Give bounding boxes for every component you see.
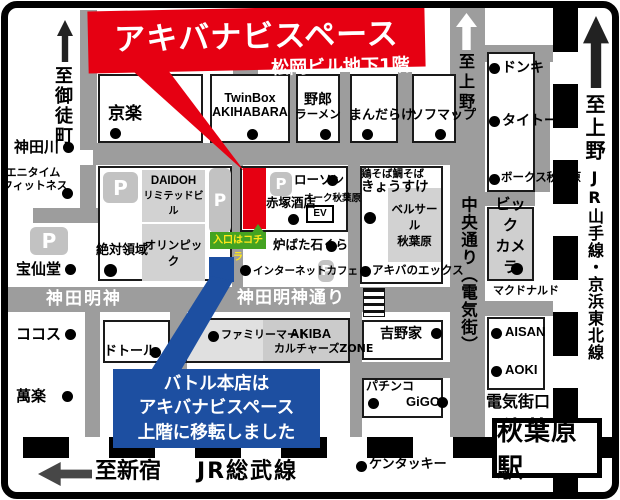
akihabara-access-map: P P P P P DAIDOH リミテッドビル オリンピック ベルサール 秋葉… xyxy=(0,0,620,500)
dot-lawson xyxy=(327,175,338,186)
dot-doutor xyxy=(150,347,161,358)
callout-line-3: 上階に移転しました xyxy=(113,421,320,446)
direction-okachimachi: 至御徒町 xyxy=(53,66,71,146)
dot-akatsuka xyxy=(288,214,299,225)
dot-akiba-no-x xyxy=(360,266,371,277)
place-donki: ドンキ xyxy=(502,60,544,76)
anytime-line-2: フィットネス xyxy=(2,180,64,193)
arrow-left-shinjuku-icon xyxy=(38,462,92,486)
direction-shinjuku-label: 至新宿 xyxy=(95,459,161,484)
dot-donki xyxy=(489,63,500,74)
building-bic-camera: ビック カメラ xyxy=(489,209,532,261)
dot-internet-cafe xyxy=(240,265,251,276)
rail-line-yamanote-label: JR山手線・京浜東北線 xyxy=(586,168,602,361)
title-banner: アキバナビスペース 松岡ビル地下1階 xyxy=(87,4,425,73)
road-upper-horizontal xyxy=(93,143,450,165)
place-aisan: AISAN xyxy=(505,325,545,340)
daidoh-label-1: DAIDOH xyxy=(151,175,196,187)
place-manraku: 萬楽 xyxy=(16,388,46,405)
dot-gigo xyxy=(437,397,448,408)
parking-icon-daidoh: P xyxy=(103,172,138,203)
dot-volks xyxy=(489,174,500,185)
entrance-label: 入口はコチラ xyxy=(210,232,266,249)
road-left-stub xyxy=(33,208,100,223)
dot-kyosuke xyxy=(364,212,376,224)
bellesalle-label-2: 秋葉原 xyxy=(397,233,432,249)
place-kyoraku: 京楽 xyxy=(108,105,142,125)
akihabara-station-box: 秋葉原駅 xyxy=(492,418,602,478)
place-twinbox: TwinBox AKIHABARA xyxy=(203,91,297,120)
dot-hosendo xyxy=(65,264,76,275)
dot-yaro-ramen xyxy=(320,129,331,140)
anytime-line-1: エニタイム xyxy=(2,167,64,180)
dot-kandagawa xyxy=(63,142,74,153)
place-akiba-no-x: アキバのエックス xyxy=(372,264,464,277)
place-sofmap: ソフマップ xyxy=(411,109,476,124)
place-internet-cafe: インターネットカフェ xyxy=(253,265,358,277)
kyosuke-line-2: きょうすけ xyxy=(361,180,429,196)
arrow-up-okachimachi-icon xyxy=(57,20,73,62)
dot-mandarake xyxy=(362,129,373,140)
place-taito: タイトー xyxy=(502,113,558,129)
building-bellesalle: ベルサール 秋葉原 xyxy=(388,188,441,262)
dot-kfc xyxy=(356,461,367,472)
bellesalle-label-1: ベルサール xyxy=(388,201,441,233)
road-kanda-myojin-label: 神田明神 xyxy=(46,290,122,310)
place-kyosuke: 鶏そば鯛そば きょうすけ xyxy=(361,168,429,196)
direction-ueno-rail: 至上野 xyxy=(584,94,604,163)
parking-icon-tall: P xyxy=(209,168,231,233)
dot-pachinko xyxy=(368,398,379,409)
building-olympic: オリンピック xyxy=(142,224,205,281)
relocation-callout: バトル本店は アキバナビスペース 上階に移転しました xyxy=(113,369,320,448)
place-cocos: ココス xyxy=(16,326,61,343)
road-mid-right-2 xyxy=(485,301,553,316)
station-exit-label: 電気街口 xyxy=(486,393,550,411)
place-oak-akihabara: オーク秋葉原 xyxy=(304,194,361,205)
olympic-label: オリンピック xyxy=(142,237,205,269)
twinbox-line-2: AKIHABARA xyxy=(203,105,297,119)
road-lower-vert-1 xyxy=(85,312,100,438)
place-kfc: ケンタッキー xyxy=(369,458,447,473)
place-kandagawa: 神田川 xyxy=(14,139,59,156)
dot-anytime-fitness xyxy=(62,188,73,199)
place-mandarake: まんだらけ xyxy=(349,109,414,124)
yaro-line-2: ラーメン xyxy=(292,108,344,121)
dot-robata-ishikura xyxy=(326,241,337,252)
place-aoki: AOKI xyxy=(505,363,538,378)
place-hosendo: 宝仙堂 xyxy=(16,261,61,278)
yaro-line-1: 野郎 xyxy=(292,92,344,108)
road-lower-horizontal xyxy=(350,362,450,378)
railway-station-right-stub xyxy=(602,437,614,458)
bic-label-1: ビック xyxy=(489,193,532,235)
place-gigo: GiGO xyxy=(406,395,440,410)
dot-aoki xyxy=(491,366,502,377)
place-akiba-zone-1: AKIBA xyxy=(290,327,331,342)
place-yoshinoya: 吉野家 xyxy=(380,326,422,342)
dot-manraku xyxy=(62,391,73,402)
dot-kyoraku xyxy=(110,128,121,139)
daidoh-label-2: リミテッドビル xyxy=(142,187,205,217)
place-anytime-fitness: エニタイム フィットネス xyxy=(2,167,64,192)
dot-familymart xyxy=(208,331,219,342)
place-pachinko: パチンコ xyxy=(366,380,414,394)
dot-yoshinoya xyxy=(431,328,442,339)
callout-line-2: アキバナビスペース xyxy=(113,396,320,421)
dot-bic-camera xyxy=(511,263,523,275)
akiba-navi-space-building xyxy=(243,168,266,229)
station-name: 秋葉原駅 xyxy=(497,411,597,485)
place-volks: ボークス秋葉原 xyxy=(501,171,581,184)
road-kanda-myojin-dori-label: 神田明神通り xyxy=(237,289,345,309)
arrow-up-ueno-rail-icon xyxy=(583,16,609,88)
place-doutor: ドトール xyxy=(104,345,156,360)
dot-twinbox xyxy=(247,129,258,140)
parking-icon-lawson: P xyxy=(270,172,292,196)
rail-line-sobu-label: JR総武線 xyxy=(197,459,298,484)
parking-icon-west: P xyxy=(30,227,68,255)
dot-zettai-ryoiki xyxy=(104,264,117,277)
place-zettai-ryoiki: 絶対領域 xyxy=(96,244,148,259)
building-daidoh: DAIDOH リミテッドビル xyxy=(142,170,205,222)
dot-taito xyxy=(489,116,500,127)
dot-sofmap xyxy=(435,129,446,140)
direction-ueno-road: 至上野 xyxy=(457,53,473,113)
dot-aisan xyxy=(491,328,502,339)
callout-line-1: バトル本店は xyxy=(113,372,320,397)
place-akiba-zone-2: カルチャーズZONE xyxy=(274,343,373,356)
dot-cocos xyxy=(65,329,76,340)
place-mcdonalds: マクドナルド xyxy=(493,285,559,298)
twinbox-line-1: TwinBox xyxy=(203,91,297,105)
place-yaro-ramen: 野郎 ラーメン xyxy=(292,92,344,121)
crosswalk-icon xyxy=(363,288,385,317)
